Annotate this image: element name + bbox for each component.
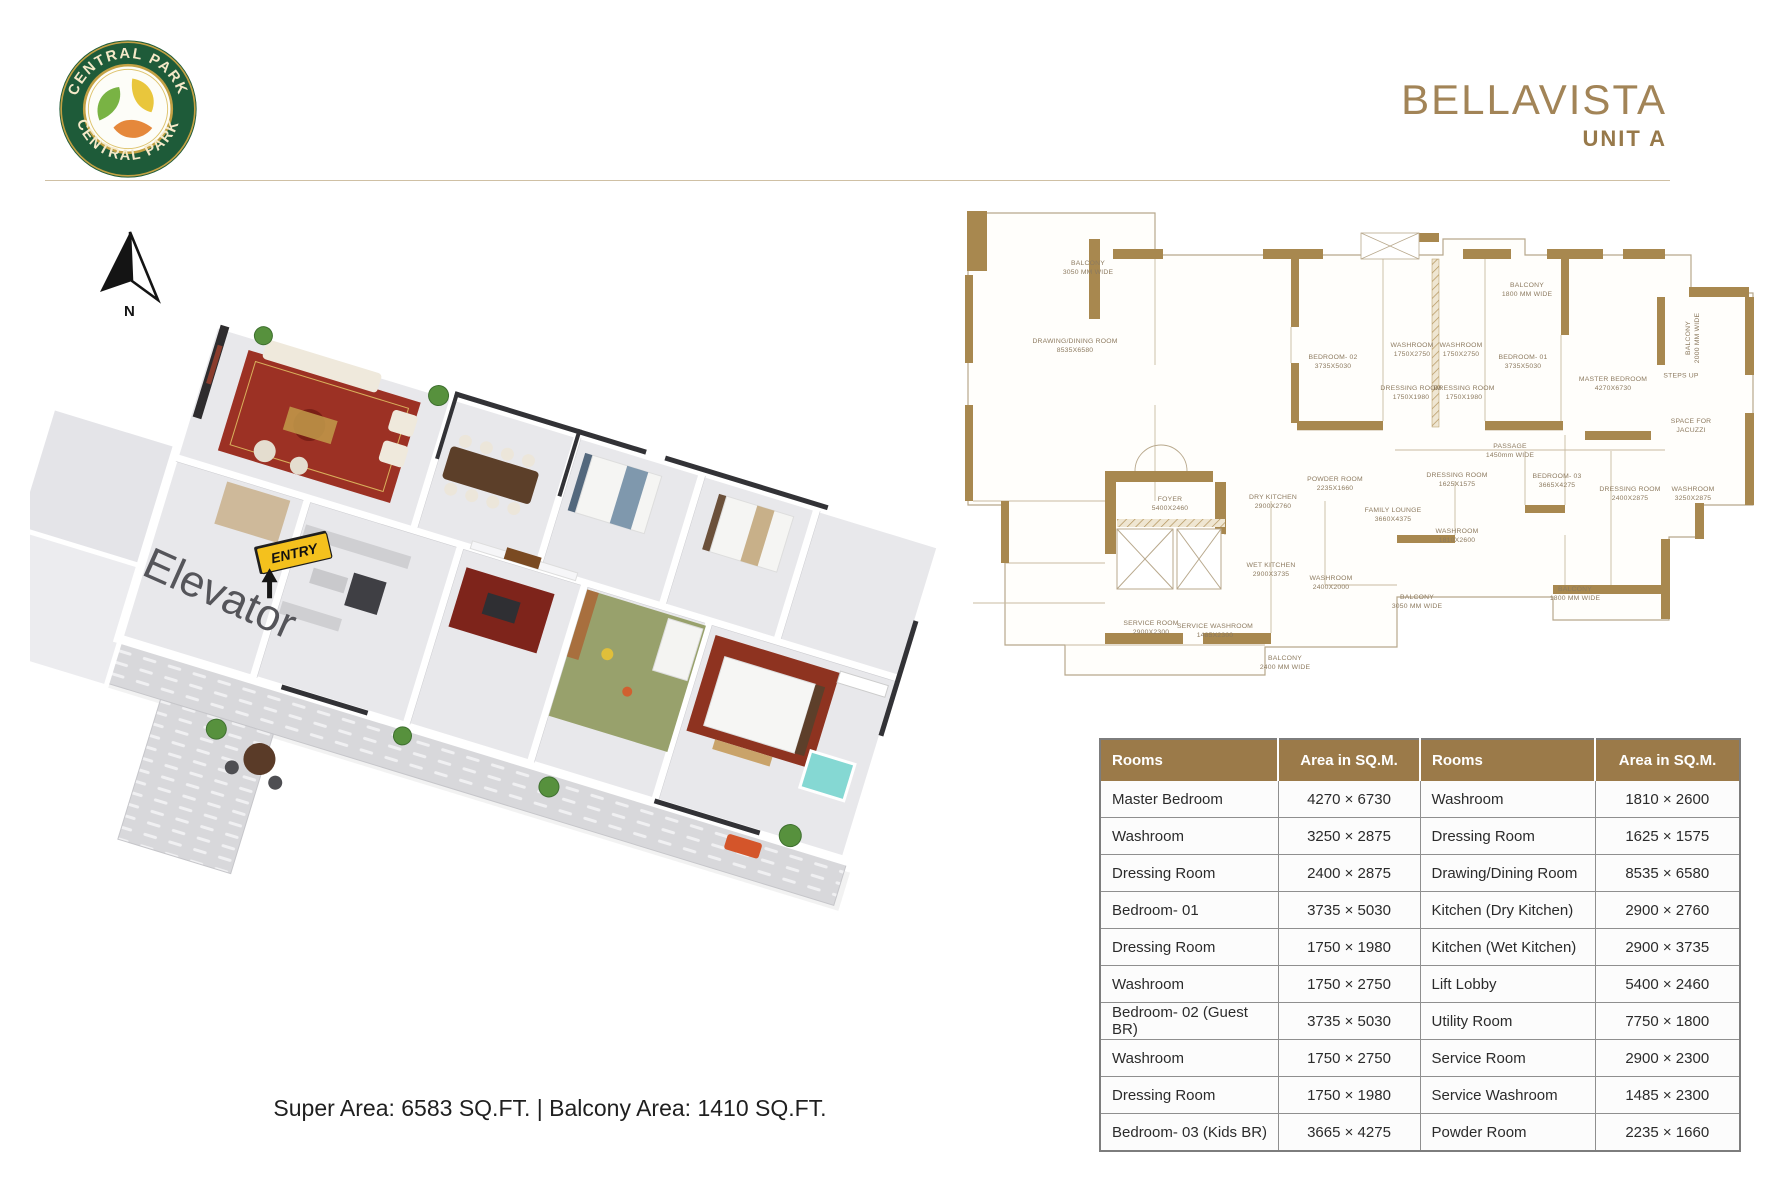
plan2d-room-label: DRESSING ROOM2400X2875 [1599, 486, 1660, 504]
room-area-cell: 3735 × 5030 [1278, 892, 1420, 929]
room-area-cell: 5400 × 2460 [1595, 966, 1740, 1003]
plan2d-room-label: DRESSING ROOM1625X1575 [1426, 472, 1487, 490]
plan2d-room-label: WASHROOM1750X2750 [1391, 342, 1434, 360]
room-area-table: RoomsArea in SQ.M.RoomsArea in SQ.M. Mas… [1099, 738, 1741, 1152]
central-park-logo: CENTRAL PARK CENTRAL PARK [57, 38, 199, 180]
page: { "header": { "logo_text_top": "CENTRAL … [0, 0, 1787, 1191]
room-name-cell: Bedroom- 03 (Kids BR) [1100, 1114, 1278, 1152]
area-table-body: Master Bedroom4270 × 6730Washroom1810 × … [1100, 781, 1740, 1152]
column-header: Area in SQ.M. [1595, 739, 1740, 781]
room-area-cell: 4270 × 6730 [1278, 781, 1420, 818]
plan2d-room-label: DRESSING ROOM1750X1980 [1433, 385, 1494, 403]
table-row: Bedroom- 013735 × 5030Kitchen (Dry Kitch… [1100, 892, 1740, 929]
plan2d-room-label: DRY KITCHEN2900X2760 [1249, 494, 1297, 512]
plan2d-room-label: BALCONY1800 MM WIDE [1502, 282, 1552, 300]
header-title-block: BELLAVISTA UNIT A [1401, 78, 1667, 152]
room-area-cell: 2900 × 2300 [1595, 1040, 1740, 1077]
table-row: Washroom1750 × 2750Service Room2900 × 23… [1100, 1040, 1740, 1077]
table-row: Master Bedroom4270 × 6730Washroom1810 × … [1100, 781, 1740, 818]
room-name-cell: Master Bedroom [1100, 781, 1278, 818]
room-name-cell: Washroom [1100, 966, 1278, 1003]
room-area-cell: 2900 × 2760 [1595, 892, 1740, 929]
room-area-cell: 2900 × 3735 [1595, 929, 1740, 966]
room-name-cell: Dressing Room [1100, 929, 1278, 966]
plan2d-room-label: PASSAGE1450mm WIDE [1486, 443, 1534, 461]
plan2d-room-label: BEDROOM- 013735X5030 [1498, 354, 1547, 372]
room-name-cell: Utility Room [1420, 1003, 1595, 1040]
plan2d-room-label: MASTER BEDROOM4270X6730 [1579, 376, 1647, 394]
plan2d-room-label: BALCONY3050 MM WIDE [1392, 594, 1442, 612]
plan2d-room-label: WASHROOM1750X2750 [1440, 342, 1483, 360]
room-area-cell: 1750 × 1980 [1278, 1077, 1420, 1114]
super-area-text: Super Area: 6583 SQ.FT. | Balcony Area: … [270, 1095, 830, 1122]
table-row: Bedroom- 02 (Guest BR)3735 × 5030Utility… [1100, 1003, 1740, 1040]
room-area-cell: 2235 × 1660 [1595, 1114, 1740, 1152]
table-row: Dressing Room1750 × 1980Kitchen (Wet Kit… [1100, 929, 1740, 966]
room-name-cell: Kitchen (Wet Kitchen) [1420, 929, 1595, 966]
2d-floorplan: BALCONY3050 MM WIDEBALCONY1800 MM WIDEBA… [965, 205, 1757, 717]
room-name-cell: Washroom [1100, 1040, 1278, 1077]
room-area-cell: 8535 × 6580 [1595, 855, 1740, 892]
room-area-cell: 3665 × 4275 [1278, 1114, 1420, 1152]
room-name-cell: Washroom [1100, 818, 1278, 855]
room-name-cell: Dressing Room [1100, 1077, 1278, 1114]
plan2d-labels: BALCONY3050 MM WIDEBALCONY1800 MM WIDEBA… [965, 205, 1757, 717]
room-area-cell: 3735 × 5030 [1278, 1003, 1420, 1040]
plan2d-room-label: BALCONY3050 MM WIDE [1063, 260, 1113, 278]
plan2d-room-label: BEDROOM- 033665X4275 [1532, 473, 1581, 491]
room-name-cell: Dressing Room [1420, 818, 1595, 855]
plan2d-room-label: STEPS UP [1663, 373, 1698, 382]
plan2d-room-label: DRESSING ROOM1750X1980 [1380, 385, 1441, 403]
unit-subtitle: UNIT A [1401, 126, 1667, 152]
room-area-cell: 7750 × 1800 [1595, 1003, 1740, 1040]
room-name-cell: Washroom [1420, 781, 1595, 818]
table-row: Dressing Room1750 × 1980Service Washroom… [1100, 1077, 1740, 1114]
plan2d-room-label: BALCONY2000 MM WIDE [1685, 313, 1703, 363]
room-name-cell: Service Washroom [1420, 1077, 1595, 1114]
room-name-cell: Drawing/Dining Room [1420, 855, 1595, 892]
header-divider [45, 180, 1670, 181]
table-row: Washroom1750 × 2750Lift Lobby5400 × 2460 [1100, 966, 1740, 1003]
room-area-cell: 1810 × 2600 [1595, 781, 1740, 818]
room-area-cell: 2400 × 2875 [1278, 855, 1420, 892]
area-table-head-row: RoomsArea in SQ.M.RoomsArea in SQ.M. [1100, 739, 1740, 781]
plan2d-room-label: FAMILY LOUNGE3660X4375 [1365, 507, 1422, 525]
room-area-cell: 1485 × 2300 [1595, 1077, 1740, 1114]
room-name-cell: Dressing Room [1100, 855, 1278, 892]
room-area-cell: 1625 × 1575 [1595, 818, 1740, 855]
page-title: BELLAVISTA [1401, 78, 1667, 122]
column-header: Rooms [1100, 739, 1278, 781]
table-row: Bedroom- 03 (Kids BR)3665 × 4275Powder R… [1100, 1114, 1740, 1152]
plan2d-room-label: WET KITCHEN2900X3735 [1247, 562, 1296, 580]
column-header: Area in SQ.M. [1278, 739, 1420, 781]
plan2d-room-label: SERVICE ROOM2900X2300 [1123, 620, 1178, 638]
plan2d-room-label: SERVICE WASHROOM1485X2300 [1177, 623, 1253, 641]
room-name-cell: Bedroom- 02 (Guest BR) [1100, 1003, 1278, 1040]
plan2d-room-label: DRAWING/DINING ROOM8535X6580 [1032, 338, 1117, 356]
plan2d-room-label: WASHROOM1810X2600 [1436, 528, 1479, 546]
plan2d-room-label: WASHROOM2400X2000 [1310, 575, 1353, 593]
table-row: Dressing Room2400 × 2875Drawing/Dining R… [1100, 855, 1740, 892]
room-area-cell: 3250 × 2875 [1278, 818, 1420, 855]
plan2d-room-label: BALCONY2400 MM WIDE [1260, 655, 1310, 673]
plan2d-room-label: FOYER5400X2460 [1152, 496, 1189, 514]
room-name-cell: Kitchen (Dry Kitchen) [1420, 892, 1595, 929]
table-row: Washroom3250 × 2875Dressing Room1625 × 1… [1100, 818, 1740, 855]
plan2d-room-label: WASHROOM3250X2875 [1672, 486, 1715, 504]
room-name-cell: Service Room [1420, 1040, 1595, 1077]
plan2d-room-label: BALCONY1800 MM WIDE [1550, 586, 1600, 604]
plan2d-room-label: POWDER ROOM2235X1660 [1307, 476, 1363, 494]
room-area-cell: 1750 × 2750 [1278, 1040, 1420, 1077]
room-name-cell: Powder Room [1420, 1114, 1595, 1152]
room-name-cell: Bedroom- 01 [1100, 892, 1278, 929]
plan2d-room-label: SPACE FORJACUZZI [1671, 418, 1712, 436]
room-area-cell: 1750 × 2750 [1278, 966, 1420, 1003]
column-header: Rooms [1420, 739, 1595, 781]
isometric-3d-floorplan: Elevator ENTRY [30, 268, 970, 928]
room-area-cell: 1750 × 1980 [1278, 929, 1420, 966]
room-name-cell: Lift Lobby [1420, 966, 1595, 1003]
plan2d-room-label: BEDROOM- 023735X5030 [1308, 354, 1357, 372]
